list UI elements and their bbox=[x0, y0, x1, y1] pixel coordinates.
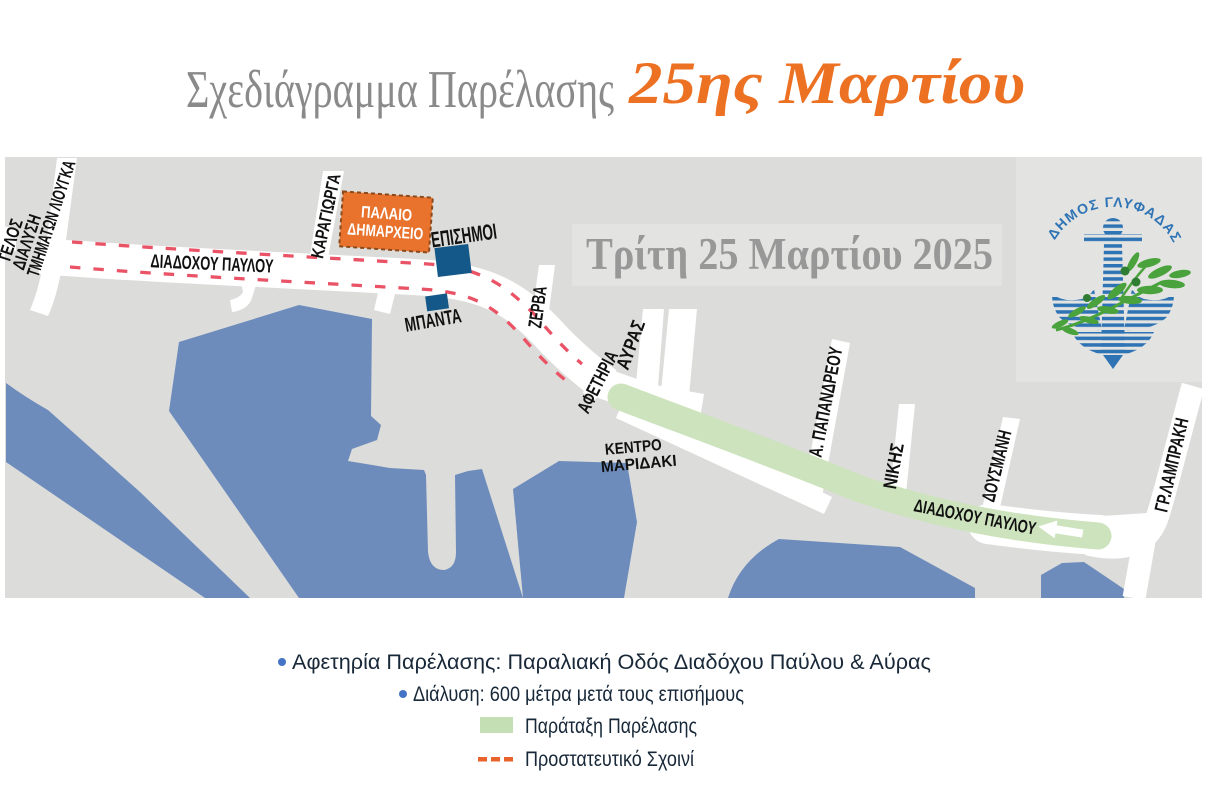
svg-text:Αφετηρία Παρέλασης: Παραλιακή: Αφετηρία Παρέλασης: Παραλιακή Οδός Διαδό… bbox=[292, 651, 931, 674]
svg-text:Παράταξη Παρέλασης: Παράταξη Παρέλασης bbox=[525, 715, 697, 738]
svg-text:Σχεδιάγραμμα Παρέλασης: Σχεδιάγραμμα Παρέλασης bbox=[186, 61, 614, 119]
svg-text:25ης Μαρτίου: 25ης Μαρτίου bbox=[628, 50, 1025, 116]
svg-text:Διάλυση: 600 μέτρα μετά τους ε: Διάλυση: 600 μέτρα μετά τους επισήμους bbox=[413, 683, 744, 706]
svg-text:Τρίτη 25 Μαρτίου 2025: Τρίτη 25 Μαρτίου 2025 bbox=[586, 229, 993, 279]
svg-text:Προστατευτικό Σχοινί: Προστατευτικό Σχοινί bbox=[525, 748, 694, 771]
